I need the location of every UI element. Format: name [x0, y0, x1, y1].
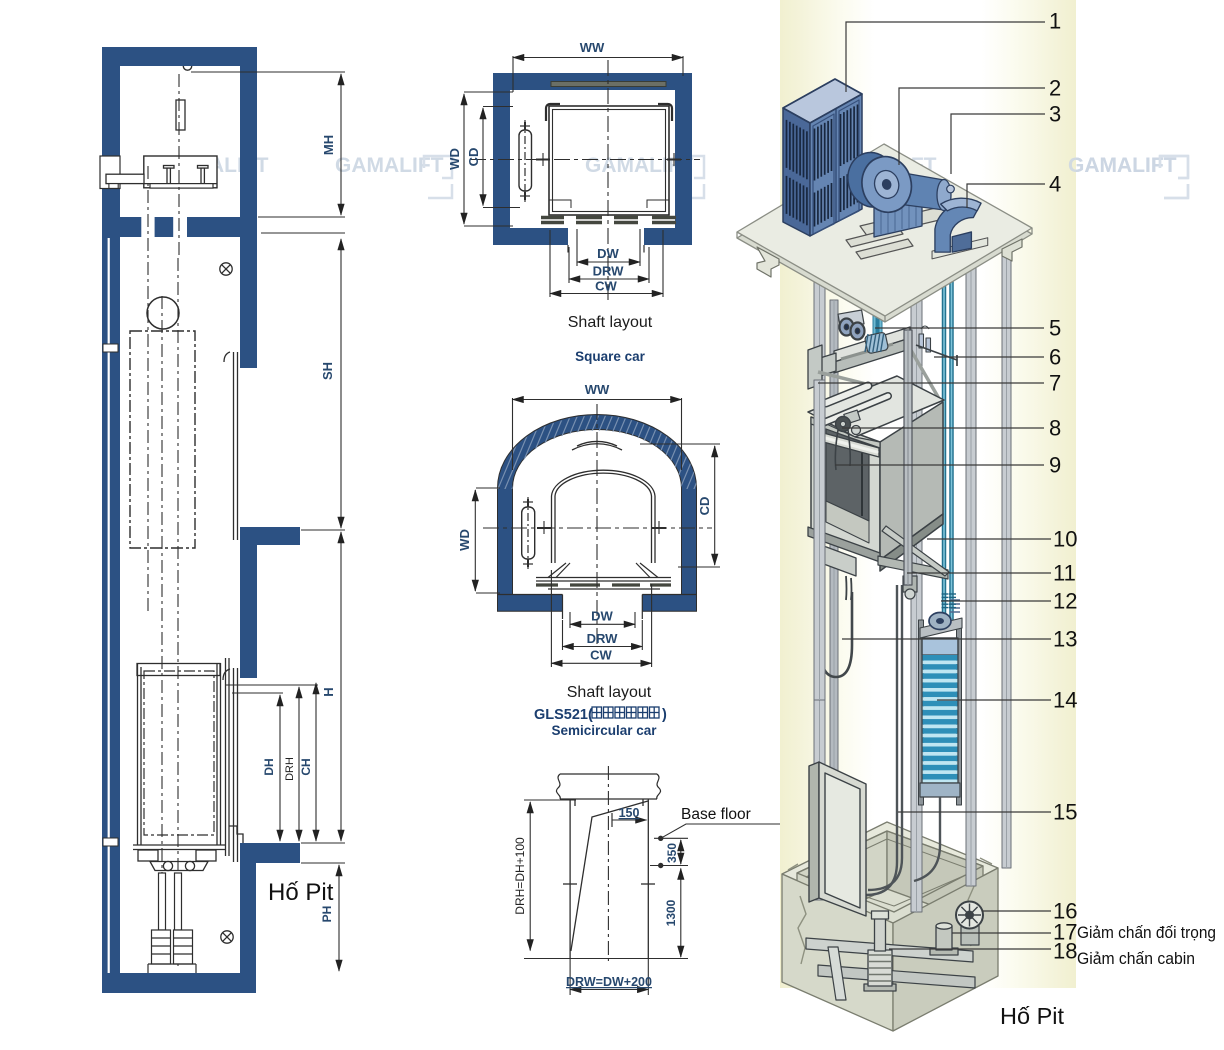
svg-text:CW: CW — [590, 648, 612, 663]
svg-text:1300: 1300 — [664, 899, 678, 926]
svg-text:14: 14 — [1053, 688, 1077, 713]
svg-text:7: 7 — [1049, 371, 1061, 396]
svg-text:Base floor: Base floor — [681, 806, 751, 823]
svg-text:Giảm chấn đối trọng: Giảm chấn đối trọng — [1077, 924, 1216, 942]
svg-text:13: 13 — [1053, 627, 1077, 652]
svg-text:4: 4 — [1049, 172, 1061, 197]
svg-text:GLS521(: GLS521( — [534, 707, 593, 723]
svg-text:DH: DH — [262, 758, 276, 775]
svg-text:SH: SH — [320, 362, 335, 380]
svg-text:Shaft layout: Shaft layout — [567, 684, 652, 701]
svg-text:WW: WW — [585, 382, 610, 397]
svg-text:Hố Pit: Hố Pit — [1000, 1003, 1064, 1029]
svg-text:15: 15 — [1053, 800, 1077, 825]
svg-text:9: 9 — [1049, 453, 1061, 478]
svg-text:DRW=DW+200: DRW=DW+200 — [566, 975, 652, 989]
svg-text:18: 18 — [1053, 939, 1077, 964]
svg-text:MH: MH — [321, 135, 336, 155]
svg-text:H: H — [321, 687, 336, 696]
svg-text:CW: CW — [595, 279, 617, 294]
svg-text:2: 2 — [1049, 76, 1061, 101]
svg-text:10: 10 — [1053, 527, 1077, 552]
svg-text:350: 350 — [665, 843, 679, 863]
svg-text:DRW: DRW — [593, 264, 625, 279]
svg-text:Square car: Square car — [575, 349, 646, 364]
svg-text:DRH: DRH — [284, 757, 296, 781]
svg-text:GAMALIFT: GAMALIFT — [335, 154, 444, 177]
svg-text:6: 6 — [1049, 345, 1061, 370]
svg-text:): ) — [662, 707, 667, 723]
svg-text:DRH=DH+100: DRH=DH+100 — [513, 837, 527, 915]
svg-text:Hố Pit: Hố Pit — [268, 879, 334, 906]
svg-text:CH: CH — [299, 758, 313, 775]
svg-text:1: 1 — [1049, 9, 1061, 34]
svg-text:WD: WD — [447, 148, 462, 170]
svg-text:12: 12 — [1053, 589, 1077, 614]
svg-text:PH: PH — [320, 906, 334, 923]
svg-text:CD: CD — [697, 497, 712, 516]
svg-text:150: 150 — [619, 806, 640, 820]
svg-text:8: 8 — [1049, 416, 1061, 441]
svg-text:5: 5 — [1049, 316, 1061, 341]
svg-text:DW: DW — [597, 246, 619, 261]
svg-text:WW: WW — [580, 40, 605, 55]
svg-text:CD: CD — [466, 148, 481, 167]
svg-text:11: 11 — [1053, 561, 1076, 586]
svg-text:DW: DW — [591, 609, 613, 624]
svg-text:3: 3 — [1049, 102, 1061, 127]
svg-text:WD: WD — [457, 529, 472, 551]
svg-text:DRW: DRW — [587, 631, 619, 646]
svg-text:Semicircular car: Semicircular car — [551, 723, 657, 738]
svg-text:Giảm chấn cabin: Giảm chấn cabin — [1077, 950, 1195, 968]
svg-text:Shaft layout: Shaft layout — [568, 314, 653, 331]
